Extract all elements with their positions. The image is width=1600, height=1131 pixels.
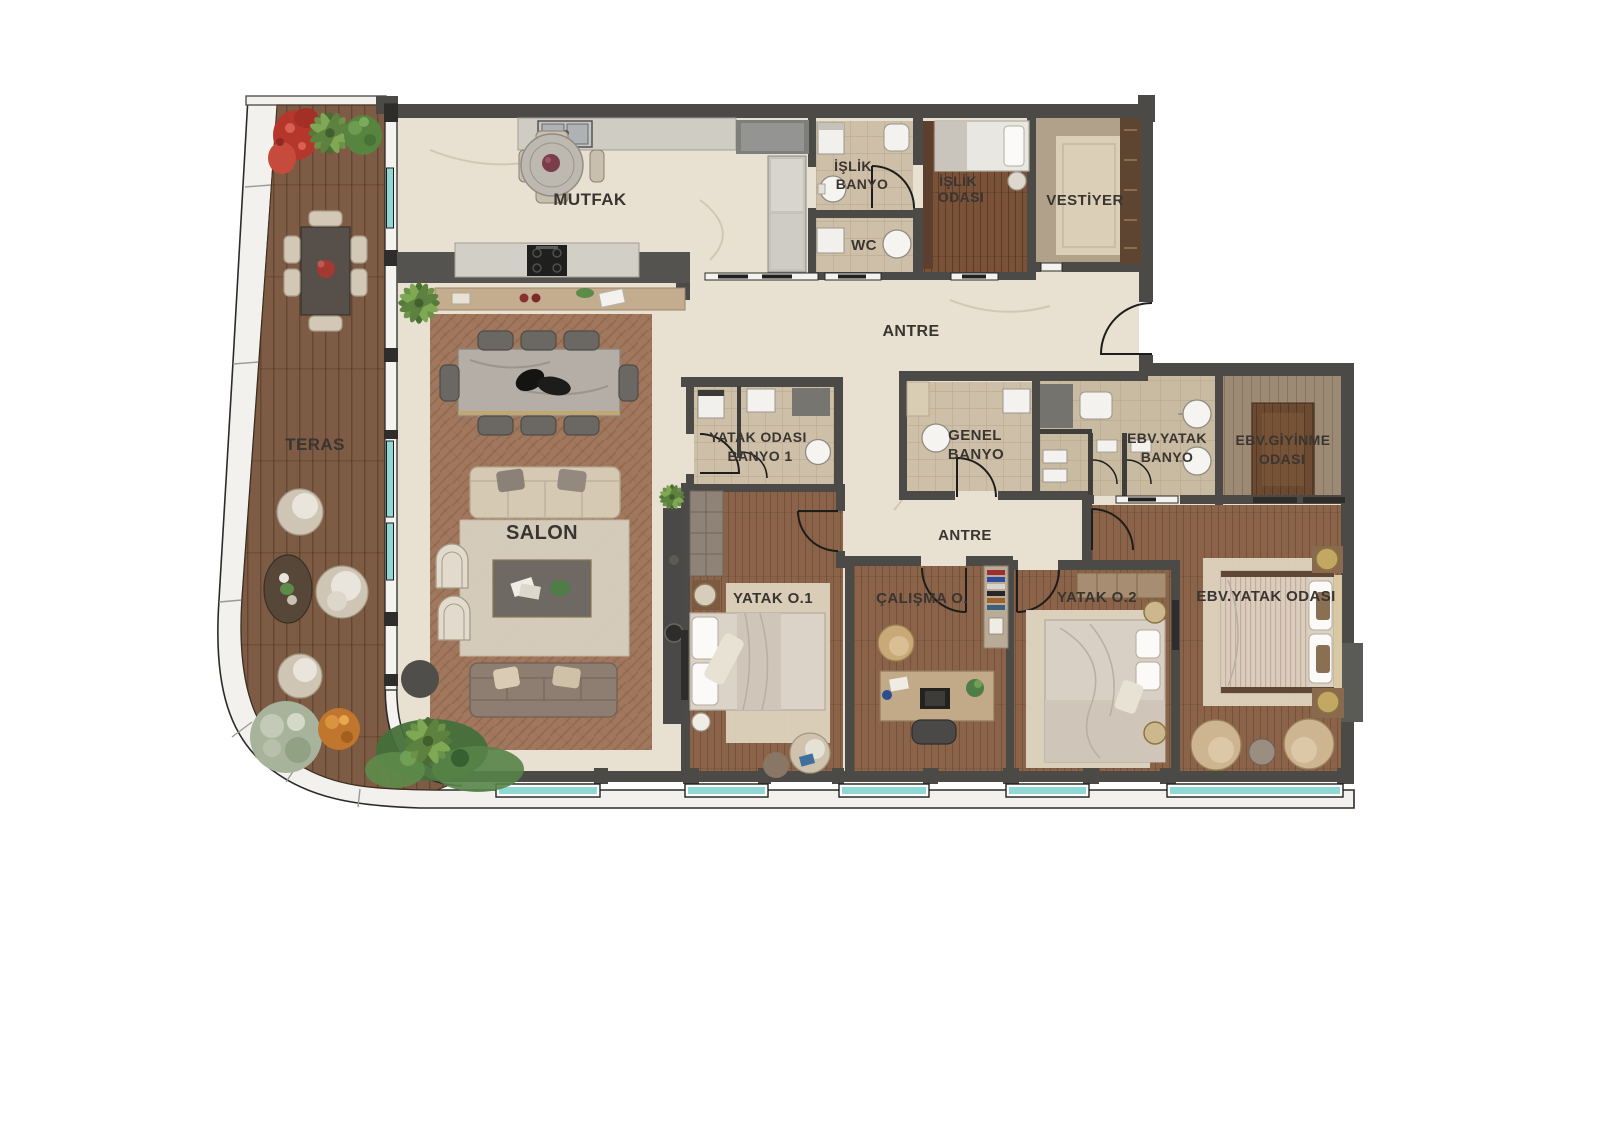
svg-text:BANYO: BANYO <box>1141 449 1194 465</box>
svg-text:EBV.GİYİNME: EBV.GİYİNME <box>1236 432 1331 448</box>
svg-text:EBV.YATAK: EBV.YATAK <box>1127 430 1207 446</box>
svg-text:ODASI: ODASI <box>938 189 984 205</box>
svg-text:İŞLİK: İŞLİK <box>939 173 977 189</box>
svg-text:WC: WC <box>851 237 877 254</box>
svg-text:ANTRE: ANTRE <box>882 323 939 340</box>
svg-text:SALON: SALON <box>506 522 578 544</box>
svg-text:İŞLİK: İŞLİK <box>834 158 872 174</box>
svg-text:MUTFAK: MUTFAK <box>553 190 627 209</box>
svg-text:GENEL: GENEL <box>948 427 1002 444</box>
svg-text:ODASI: ODASI <box>1259 451 1305 467</box>
svg-text:YATAK O.1: YATAK O.1 <box>733 590 813 607</box>
svg-text:ANTRE: ANTRE <box>938 527 992 544</box>
svg-text:YATAK O.2: YATAK O.2 <box>1057 589 1137 606</box>
svg-text:YATAK ODASI: YATAK ODASI <box>709 429 807 445</box>
svg-text:BANYO 1: BANYO 1 <box>727 448 792 464</box>
svg-text:BANYO: BANYO <box>836 176 889 192</box>
svg-text:BANYO: BANYO <box>948 446 1004 463</box>
svg-text:ÇALIŞMA O.: ÇALIŞMA O. <box>876 590 968 607</box>
svg-text:TERAS: TERAS <box>285 435 345 454</box>
svg-text:EBV.YATAK ODASI: EBV.YATAK ODASI <box>1196 588 1335 605</box>
svg-text:VESTİYER: VESTİYER <box>1046 192 1123 209</box>
